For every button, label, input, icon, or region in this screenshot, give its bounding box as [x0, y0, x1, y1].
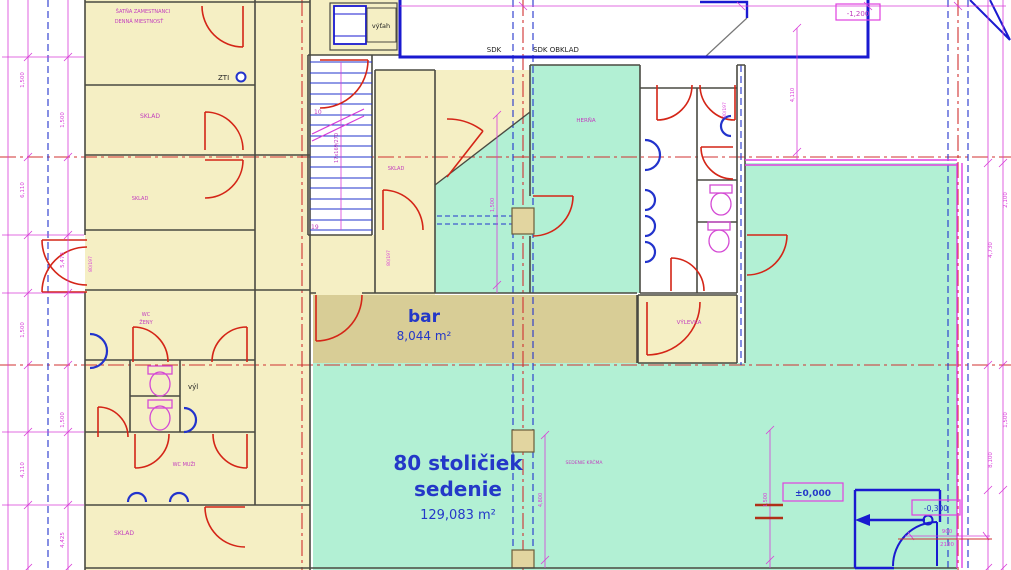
column	[512, 208, 534, 234]
stair-spec-label: 17x169/270	[334, 133, 340, 163]
room-label-sklad-4: SKLAD	[114, 530, 134, 537]
column	[512, 430, 534, 452]
dim-label: 1,500	[20, 72, 26, 88]
dim-label: 4,800	[538, 493, 544, 507]
column	[512, 550, 534, 568]
room-label-zti: ZTI	[218, 74, 229, 82]
room-label-sklad-2: SKLAD	[132, 196, 149, 202]
stair-number-top: 10	[314, 109, 322, 116]
dim-label: 1,500	[60, 412, 66, 428]
seating-fill	[313, 363, 745, 570]
room-label-vyl: výl	[188, 383, 198, 391]
vylevka-fill	[638, 295, 737, 363]
room-label-vylevka: VÝLEVKA	[677, 319, 702, 326]
dim-label: 1,500	[490, 198, 496, 212]
door-height-label: 2100	[940, 542, 954, 548]
room-label-herna: HERŇA	[576, 117, 596, 124]
label-sdk: SDK	[487, 46, 502, 54]
level-top-label: -1,200	[847, 10, 870, 18]
sklad-stair-room-fill	[375, 70, 435, 295]
elevator: výťah	[330, 3, 397, 50]
corridor-fill	[310, 235, 375, 295]
bar-area-label: 8,044 m²	[397, 329, 452, 343]
seating-label-2: sedenie	[414, 477, 502, 501]
zti-fixture	[237, 73, 246, 82]
seating-area-label: 129,083 m²	[420, 508, 496, 523]
dim-label: 4,110	[790, 88, 796, 102]
room-label-satna-1: ŠATŇA ZAMESTNANCI	[116, 8, 171, 15]
dim-label: 2,100	[1003, 192, 1009, 208]
room-label-wc-muzi: WC MUŽI	[173, 460, 196, 468]
seating-label-1: 80 stoličiek	[393, 451, 523, 475]
level-minus-label: -0,300	[924, 504, 948, 513]
room-label-wc-zeny-1: WC	[142, 312, 151, 318]
elevator-shaft	[334, 6, 366, 44]
dim-label: 4,730	[988, 242, 994, 258]
stair-number-bottom: 19	[311, 224, 319, 231]
room-label-satna-2: DENNÁ MIESTNOSŤ	[115, 17, 165, 25]
dim-label: 1,500	[763, 493, 769, 507]
level-zero-label: ±0,000	[795, 489, 831, 499]
door-width-label: 900	[942, 529, 953, 535]
door-tag: 80/197	[722, 102, 728, 118]
dim-label: 1,500	[20, 322, 26, 338]
dim-label: 4,425	[60, 532, 66, 548]
room-label-sklad-1: SKLAD	[140, 113, 160, 120]
dim-label: 1,500	[60, 112, 66, 128]
room-label-sklad-3: SKLAD	[388, 166, 405, 172]
herna-fill	[530, 65, 640, 293]
note-sedenie-krcma: SEDENIE KRČMA	[566, 459, 604, 466]
bar-name-label: bar	[408, 307, 441, 327]
dim-label: 4,110	[20, 462, 26, 478]
room-label-wc-zeny-2: ŽENY	[139, 318, 153, 326]
dim-label: 6,110	[20, 182, 26, 198]
label-sdk-obklad: SDK OBKLAD	[533, 46, 579, 54]
dim-label: 8,100	[988, 452, 994, 468]
door-tag: 80/197	[88, 256, 94, 272]
floor-plan-svg: 17x169/270 10 19 výťah	[0, 0, 1011, 570]
elevator-label: výťah	[372, 21, 390, 30]
dim-label: 1,500	[1003, 412, 1009, 428]
dim-label: 5,473	[60, 252, 66, 268]
door-tag: 80/197	[386, 250, 392, 266]
floor-plan-canvas: 17x169/270 10 19 výťah	[0, 0, 1011, 570]
